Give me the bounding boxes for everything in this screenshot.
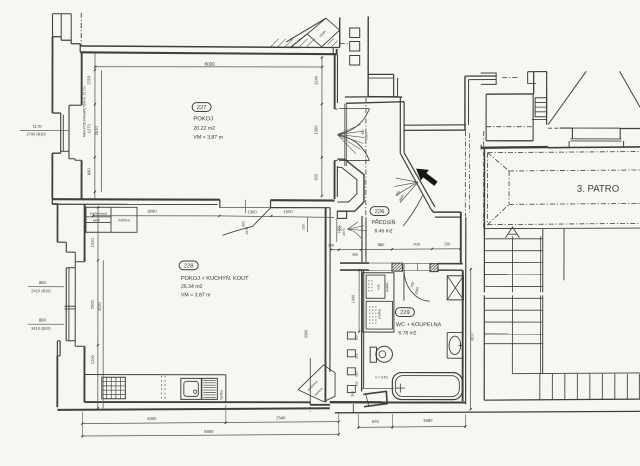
svg-text:POKOJ + KUCHYŇ. KOUT: POKOJ + KUCHYŇ. KOUT <box>181 275 249 282</box>
svg-text:WC + KOUPELNA: WC + KOUPELNA <box>396 322 442 328</box>
svg-text:koš: koš <box>376 284 380 289</box>
svg-text:890: 890 <box>86 168 91 175</box>
svg-text:3220: 3220 <box>97 302 102 312</box>
svg-text:lednice: lednice <box>118 218 129 222</box>
svg-text:226: 226 <box>375 209 385 215</box>
svg-text:NIKA POD PARAPETEM hl. 27 cm: NIKA POD PARAPETEM hl. 27 cm <box>82 86 86 137</box>
svg-text:1300: 1300 <box>247 209 257 214</box>
svg-text:prádlo: prádlo <box>385 282 389 291</box>
svg-text:1270: 1270 <box>86 124 91 134</box>
svg-text:1550: 1550 <box>283 209 293 214</box>
svg-text:6.78 m2: 6.78 m2 <box>398 330 416 336</box>
svg-text:2540: 2540 <box>276 415 286 420</box>
svg-text:1970: 1970 <box>342 228 346 235</box>
svg-text:227: 227 <box>197 105 207 111</box>
svg-text:3090: 3090 <box>147 209 157 214</box>
svg-text:6.45 m2: 6.45 m2 <box>374 228 392 234</box>
svg-text:620: 620 <box>372 419 380 424</box>
svg-text:2410 (810): 2410 (810) <box>31 326 51 331</box>
svg-text:pračka: pračka <box>377 309 381 319</box>
svg-text:3510: 3510 <box>94 126 99 136</box>
svg-text:925: 925 <box>313 173 318 180</box>
svg-text:800: 800 <box>355 353 359 358</box>
svg-text:800: 800 <box>242 221 246 227</box>
svg-text:350: 350 <box>351 391 355 397</box>
svg-text:6000: 6000 <box>204 62 215 67</box>
svg-text:3300: 3300 <box>304 330 308 338</box>
svg-text:3. PATRO: 3. PATRO <box>577 184 619 195</box>
svg-text:880: 880 <box>378 242 385 247</box>
svg-text:myčka: myčka <box>219 390 223 400</box>
svg-text:2000: 2000 <box>90 300 95 310</box>
svg-text:VM = 3,87 m: VM = 3,87 m <box>181 292 211 298</box>
svg-text:1210: 1210 <box>86 75 91 85</box>
svg-text:1000: 1000 <box>337 226 341 234</box>
svg-text:880: 880 <box>39 280 47 285</box>
svg-text:228: 228 <box>184 263 194 269</box>
svg-text:1310: 1310 <box>90 238 95 248</box>
svg-text:3017: 3017 <box>470 332 474 340</box>
svg-text:1390: 1390 <box>351 295 355 303</box>
svg-text:300: 300 <box>355 335 359 340</box>
svg-text:20.22 m2: 20.22 m2 <box>193 126 215 132</box>
svg-text:2700 (810): 2700 (810) <box>26 131 46 136</box>
svg-text:229: 229 <box>400 310 410 316</box>
svg-text:1680: 1680 <box>423 418 433 423</box>
svg-text:1970: 1970 <box>245 227 249 235</box>
svg-text:potravinová: potravinová <box>90 212 107 216</box>
svg-text:200: 200 <box>302 224 306 230</box>
svg-text:POKOJ: POKOJ <box>193 116 213 122</box>
svg-text:700: 700 <box>413 242 420 247</box>
svg-text:400: 400 <box>355 381 359 386</box>
svg-text:2600: 2600 <box>364 132 368 139</box>
svg-text:v = 570: v = 570 <box>375 376 388 380</box>
svg-text:1300: 1300 <box>313 125 318 135</box>
svg-text:2410 (810): 2410 (810) <box>31 288 51 293</box>
svg-text:450: 450 <box>352 253 358 257</box>
svg-text:skříň: skříň <box>93 218 100 222</box>
svg-text:VM = 3,87 m: VM = 3,87 m <box>193 135 223 141</box>
svg-text:3300: 3300 <box>147 416 157 421</box>
svg-text:1200: 1200 <box>90 355 95 365</box>
svg-text:PŘEDSÍŇ: PŘEDSÍŇ <box>372 218 396 226</box>
svg-text:1240: 1240 <box>313 75 318 85</box>
svg-text:600: 600 <box>355 371 359 376</box>
svg-text:720: 720 <box>444 242 451 247</box>
svg-text:26.34 m2: 26.34 m2 <box>181 284 203 290</box>
svg-text:880: 880 <box>39 318 47 323</box>
svg-text:1170: 1170 <box>33 124 43 129</box>
svg-text:190: 190 <box>328 243 334 247</box>
svg-text:5840: 5840 <box>204 429 214 434</box>
